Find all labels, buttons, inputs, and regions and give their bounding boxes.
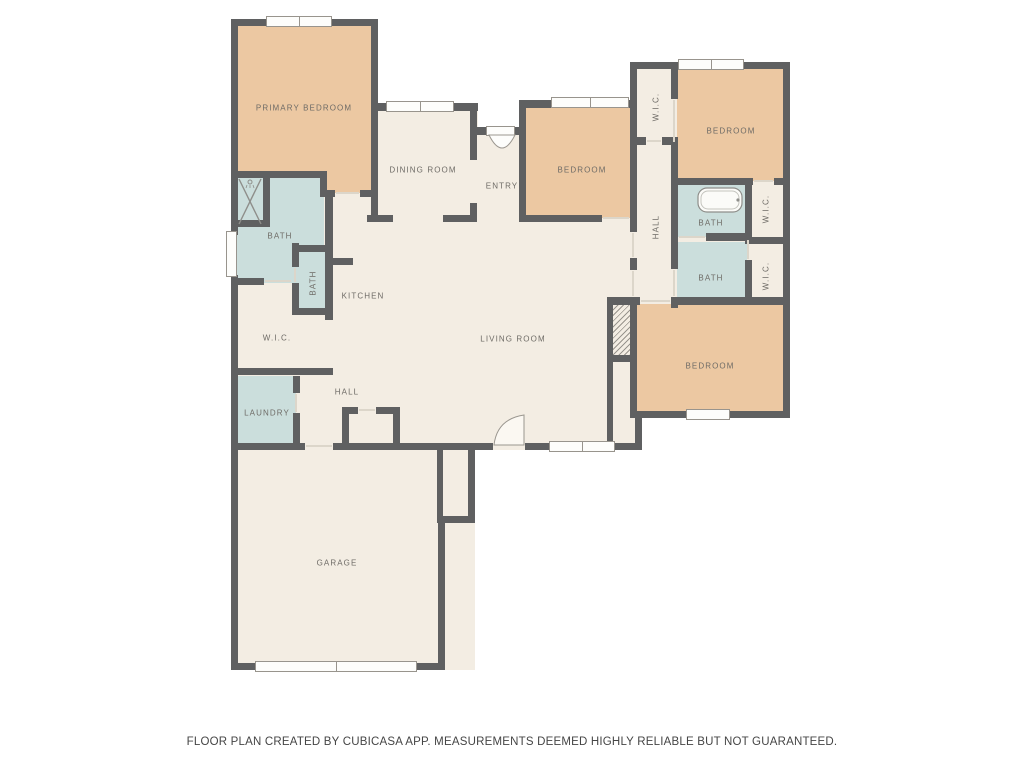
room-label-wic-top-right: W.I.C. — [652, 93, 661, 121]
wall-segment — [231, 278, 264, 285]
wall-segment — [774, 178, 790, 185]
window-dining-room — [386, 101, 454, 112]
wall-segment — [437, 516, 475, 523]
room-fill-bedroom-center — [524, 106, 632, 218]
wall-segment — [671, 178, 753, 185]
fireplace-hatch — [613, 305, 631, 356]
room-label-entry: ENTRY — [486, 182, 518, 191]
footer-disclaimer: FLOOR PLAN CREATED BY CUBICASA APP. MEAS… — [0, 736, 1024, 748]
room-label-hall-left: HALL — [335, 388, 359, 397]
window-bedroom-bottom-right — [686, 409, 730, 420]
wall-segment — [360, 190, 372, 197]
wall-segment — [671, 185, 678, 269]
wall-segment — [706, 233, 747, 241]
room-fill-bath-right-lower — [677, 242, 747, 299]
room-label-garage: GARAGE — [317, 559, 358, 568]
wall-segment — [745, 237, 790, 244]
wall-segment — [470, 111, 477, 160]
wall-segment — [292, 245, 333, 252]
wall-segment — [292, 308, 333, 315]
wall-segment — [519, 100, 526, 222]
wall-segment — [437, 450, 443, 523]
room-fill-bedroom-bottom-right — [637, 304, 785, 414]
wall-segment — [745, 185, 752, 239]
room-label-bath-right-upper: BATH — [698, 219, 723, 228]
room-fill-living-kitchen — [333, 215, 640, 450]
window-bath-left — [226, 231, 237, 277]
wall-segment — [371, 19, 378, 111]
wall-segment — [342, 407, 358, 414]
wall-segment — [231, 368, 333, 375]
room-fill-bedroom-top-right — [677, 68, 784, 181]
wall-segment — [607, 297, 613, 450]
room-label-bedroom-center: BEDROOM — [557, 166, 606, 175]
room-label-bedroom-bottom-right: BEDROOM — [685, 362, 734, 371]
room-label-dining-room: DINING ROOM — [389, 166, 456, 175]
wall-segment — [371, 111, 378, 222]
window-primary-bedroom — [266, 16, 332, 27]
wall-segment — [333, 258, 353, 265]
window-bedroom-top-right — [678, 59, 744, 70]
wall-segment — [671, 69, 678, 99]
room-label-wic-right-upper: W.I.C. — [762, 195, 771, 223]
room-label-bath-right-lower: BATH — [698, 274, 723, 283]
wall-segment — [613, 443, 642, 450]
wall-segment — [293, 413, 300, 447]
room-label-wic-left: W.I.C. — [263, 334, 291, 343]
wall-segment — [783, 304, 790, 418]
wall-segment — [613, 355, 637, 362]
wall-segment — [438, 523, 445, 670]
room-fill-bath-right-upper — [677, 184, 747, 237]
wall-segment — [393, 407, 400, 447]
wall-segment — [333, 443, 493, 450]
floor-plan-canvas: PRIMARY BEDROOM DINING ROOM ENTRY BEDROO… — [0, 0, 1024, 768]
wall-segment — [231, 275, 238, 670]
wall-segment — [630, 137, 646, 145]
wall-segment — [443, 215, 477, 222]
wall-segment — [671, 297, 790, 305]
wall-segment — [367, 215, 393, 222]
wall-segment — [231, 19, 238, 235]
wall-segment — [231, 171, 327, 178]
room-label-wic-right-lower: W.I.C. — [762, 262, 771, 290]
room-label-bath-left: BATH — [267, 232, 292, 241]
wall-segment — [630, 62, 637, 232]
wall-segment — [519, 215, 602, 222]
window-bedroom-center — [551, 97, 629, 108]
room-label-kitchen: KITCHEN — [342, 292, 385, 301]
wall-segment — [237, 220, 270, 227]
wall-segment — [745, 260, 752, 300]
wall-segment — [662, 137, 678, 145]
room-label-bedroom-top-right: BEDROOM — [706, 127, 755, 136]
room-label-bath-left-small: BATH — [309, 270, 318, 295]
wall-segment — [325, 195, 333, 320]
room-label-hall-right: HALL — [652, 215, 661, 239]
wall-segment — [525, 443, 551, 450]
room-fill-dining — [371, 103, 478, 222]
window-living-room — [549, 441, 615, 452]
wall-segment — [468, 450, 475, 523]
room-label-primary-bedroom: PRIMARY BEDROOM — [256, 104, 352, 113]
wall-segment — [293, 376, 300, 393]
garage-door — [255, 661, 417, 672]
wall-segment — [630, 258, 637, 270]
room-label-living-room: LIVING ROOM — [480, 335, 545, 344]
room-label-laundry: LAUNDRY — [244, 409, 290, 418]
wall-segment — [783, 62, 790, 308]
entry-door-leaf — [486, 126, 515, 136]
